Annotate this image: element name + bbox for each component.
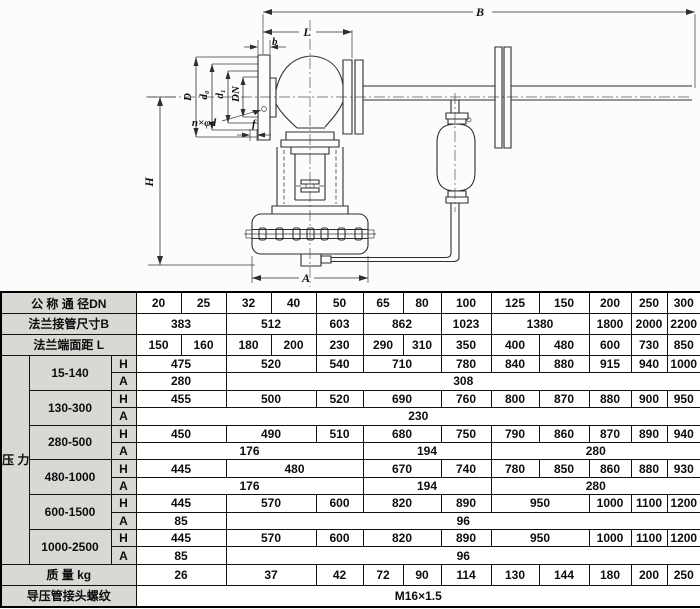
value-cell: 194 [363,477,491,494]
value-cell: 200 [631,564,667,585]
dimension-b: b [244,36,286,54]
sub-row-label: A [111,512,136,529]
pressure-range-label: 1000-2500 [29,530,111,565]
value-cell: 475 [136,355,226,372]
value-cell: 200 [271,334,316,355]
value-cell: 600 [589,334,631,355]
value-cell: 445 [136,460,226,477]
sub-row-label: A [111,477,136,494]
value-cell: 730 [631,334,667,355]
row-label: 质 量 kg [1,564,136,585]
inlet-flange [258,55,276,140]
value-cell: 1200 [667,530,700,547]
value-cell: 710 [363,355,441,372]
table-row: 600-1500H445570600820890950100011001200 [1,495,700,512]
value-cell: 230 [136,408,700,425]
pressure-range-label: 130-300 [29,390,111,425]
value-cell: 230 [316,334,363,355]
value-cell: 90 [403,564,441,585]
value-cell: 280 [491,477,700,494]
table-row: 280-500H450490510680750790860870890940 [1,425,700,442]
table-row: 130-300H455500520690760800870880900950 [1,390,700,407]
value-cell: 194 [363,442,491,459]
value-cell: 850 [667,334,700,355]
value-cell: 880 [539,355,589,372]
table-row: 1000-2500H445570600820890950100011001200 [1,530,700,547]
pressure-range-label: 280-500 [29,425,111,460]
dim-label-H: H [142,177,156,188]
row-label: 法兰接管尺寸B [1,314,136,335]
value-cell: 250 [667,564,700,585]
value-cell: 800 [491,390,539,407]
sub-row-label: H [111,355,136,372]
value-cell: 50 [316,292,363,314]
dim-label-L: L [302,25,310,39]
value-cell: 1200 [667,495,700,512]
condensate-vessel [437,100,475,203]
value-cell: 870 [589,425,631,442]
value-cell: 37 [226,564,316,585]
value-cell: 40 [271,292,316,314]
value-cell: 862 [363,314,441,335]
value-cell: 860 [539,425,589,442]
value-cell: 520 [226,355,316,372]
value-cell: 900 [631,390,667,407]
value-cell: 308 [226,373,700,390]
value-cell: 96 [226,547,700,564]
value-cell: 290 [363,334,403,355]
dimension-A: A [252,256,368,285]
value-cell: 85 [136,547,226,564]
table-row: 法兰端面距 L150160180200230290310350400480600… [1,334,700,355]
value-cell: 1100 [631,495,667,512]
value-cell: 570 [226,530,316,547]
valve-spec-sheet: B L b D [0,0,700,609]
value-cell: 114 [441,564,491,585]
sub-row-label: A [111,547,136,564]
value-cell: 512 [226,314,316,335]
dim-label-B: B [475,5,484,19]
row-label: 法兰端面距 L [1,334,136,355]
value-cell: 780 [491,460,539,477]
value-cell: 950 [491,495,589,512]
table-row: 压 力 调 节 范 围 KPa15-140H475520540710780840… [1,355,700,372]
table-row: 质 量 kg2637427290114130144180200250 [1,564,700,585]
value-cell: 520 [316,390,363,407]
value-cell: 280 [136,373,226,390]
value-cell: 603 [316,314,363,335]
value-cell: 130 [491,564,539,585]
value-cell: 455 [136,390,226,407]
table-row: 法兰接管尺寸B38351260386210231380180020002200 [1,314,700,335]
value-cell: 915 [589,355,631,372]
sub-row-label: A [111,408,136,425]
value-cell: 150 [136,334,181,355]
value-cell: 72 [363,564,403,585]
value-cell: 490 [226,425,316,442]
value-cell: 400 [491,334,539,355]
value-cell: 20 [136,292,181,314]
value-cell: 860 [589,460,631,477]
value-cell: 600 [316,530,363,547]
value-cell: 1380 [491,314,589,335]
value-cell: 85 [136,512,226,529]
dim-label-f: f [252,118,257,130]
dim-label-b: b [272,36,278,48]
pressure-range-label: 15-140 [29,355,111,390]
value-cell: 280 [491,442,700,459]
table-row: 公 称 通 径DN2025324050658010012515020025030… [1,292,700,314]
value-cell: 180 [589,564,631,585]
pipe-end-flange [495,47,511,148]
value-cell: 42 [316,564,363,585]
value-cell: 890 [441,495,491,512]
sub-row-label: H [111,460,136,477]
value-cell: 820 [363,495,441,512]
value-cell: 480 [539,334,589,355]
dimension-B: B [263,5,695,88]
value-cell: 780 [441,355,491,372]
spec-table-body: 公 称 通 径DN2025324050658010012515020025030… [1,292,700,607]
sub-row-label: H [111,425,136,442]
dim-label-d0: d₀ [198,90,210,100]
dim-label-A: A [301,271,310,285]
value-cell: 80 [403,292,441,314]
value-cell: 1000 [667,355,700,372]
value-cell: 950 [667,390,700,407]
value-cell: 445 [136,530,226,547]
value-cell: 150 [539,292,589,314]
bottom-connector [301,254,321,266]
valve-body [276,56,343,147]
value-cell: M16×1.5 [136,585,700,607]
value-cell: 880 [631,460,667,477]
value-cell: 870 [539,390,589,407]
value-cell: 890 [441,530,491,547]
value-cell: 950 [491,530,589,547]
value-cell: 1100 [631,530,667,547]
spec-table: 公 称 通 径DN2025324050658010012515020025030… [0,291,700,608]
impulse-pipe [331,203,459,262]
value-cell: 350 [441,334,491,355]
value-cell: 690 [363,390,441,407]
sub-row-label: H [111,390,136,407]
value-cell: 680 [363,425,441,442]
table-row: 导压管接头螺纹M16×1.5 [1,585,700,607]
bolt-hole [262,107,267,112]
value-cell: 200 [589,292,631,314]
sub-row-label: H [111,495,136,512]
value-cell: 445 [136,495,226,512]
value-cell: 670 [363,460,441,477]
value-cell: 125 [491,292,539,314]
row-label: 导压管接头螺纹 [1,585,136,607]
value-cell: 26 [136,564,226,585]
value-cell: 65 [363,292,403,314]
value-cell: 820 [363,530,441,547]
value-cell: 100 [441,292,491,314]
value-cell: 176 [136,442,363,459]
value-cell: 300 [667,292,700,314]
value-cell: 176 [136,477,363,494]
value-cell: 600 [316,495,363,512]
value-cell: 383 [136,314,226,335]
pressure-range-label: 600-1500 [29,495,111,530]
value-cell: 930 [667,460,700,477]
value-cell: 25 [181,292,226,314]
pressure-range-label: 480-1000 [29,460,111,495]
value-cell: 160 [181,334,226,355]
sub-row-label: A [111,442,136,459]
value-cell: 32 [226,292,271,314]
row-label: 公 称 通 径DN [1,292,136,314]
value-cell: 1023 [441,314,491,335]
dim-label-D: D [182,93,194,102]
value-cell: 840 [491,355,539,372]
dimension-f: f [237,118,271,141]
value-cell: 790 [491,425,539,442]
table-row: 480-1000H445480670740780850860880930 [1,460,700,477]
value-cell: 96 [226,512,700,529]
sub-row-label: H [111,530,136,547]
outlet-pipe [363,86,692,100]
value-cell: 1800 [589,314,631,335]
value-cell: 180 [226,334,271,355]
vessel-plug [467,118,471,122]
value-cell: 1000 [589,530,631,547]
value-cell: 880 [589,390,631,407]
value-cell: 250 [631,292,667,314]
value-cell: 940 [667,425,700,442]
valve-technical-drawing: B L b D [0,0,700,291]
value-cell: 540 [316,355,363,372]
sub-row-label: A [111,373,136,390]
value-cell: 760 [441,390,491,407]
value-cell: 940 [631,355,667,372]
value-cell: 480 [226,460,363,477]
value-cell: 450 [136,425,226,442]
value-cell: 310 [403,334,441,355]
value-cell: 890 [631,425,667,442]
bolt-note-label: n×φd [192,117,217,129]
value-cell: 2200 [667,314,700,335]
value-cell: 2000 [631,314,667,335]
value-cell: 850 [539,460,589,477]
value-cell: 1000 [589,495,631,512]
value-cell: 740 [441,460,491,477]
value-cell: 750 [441,425,491,442]
value-cell: 510 [316,425,363,442]
pressure-axis-label: 压 力 调 节 范 围 KPa [1,355,29,564]
value-cell: 144 [539,564,589,585]
value-cell: 500 [226,390,316,407]
dim-label-d1: d₁ [214,89,226,98]
dim-label-DN: DN [230,85,242,103]
bolt-note: n×φd [192,110,261,129]
value-cell: 570 [226,495,316,512]
